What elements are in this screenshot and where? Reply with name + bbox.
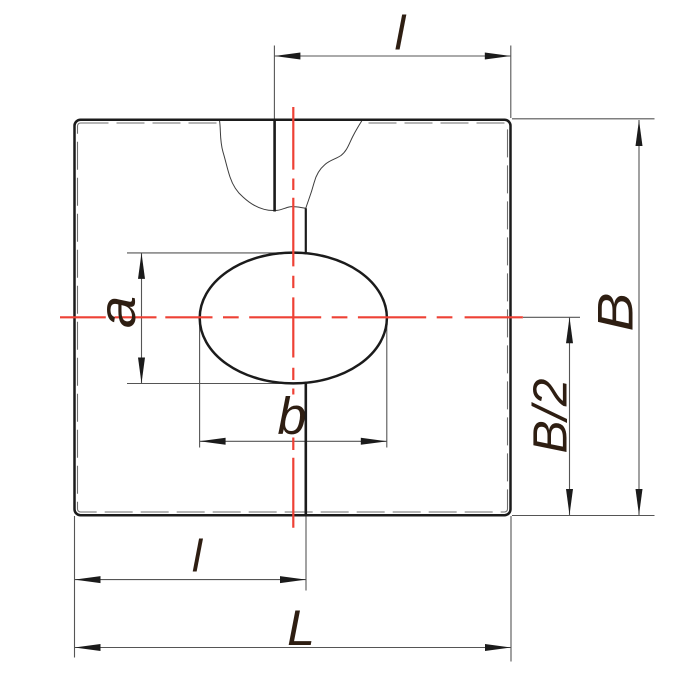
svg-text:B: B	[587, 292, 643, 331]
svg-text:a: a	[88, 296, 146, 328]
svg-text:l: l	[395, 8, 407, 61]
svg-text:B/2: B/2	[524, 379, 577, 454]
svg-text:L: L	[287, 600, 315, 656]
svg-text:b: b	[278, 388, 307, 446]
